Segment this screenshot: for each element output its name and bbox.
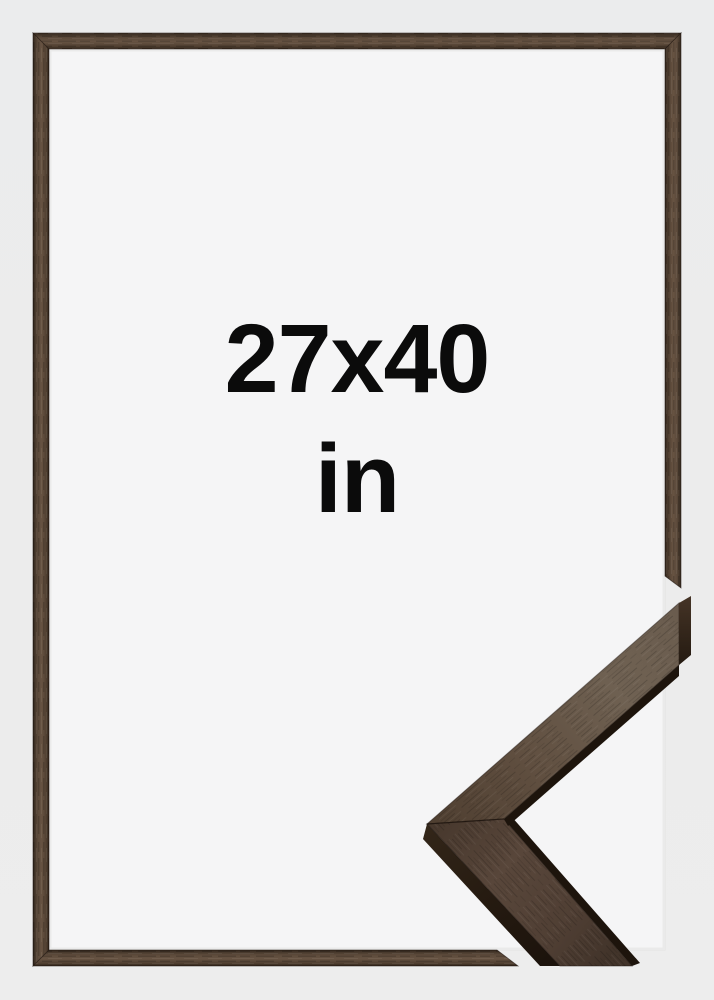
- frame-illustration: [0, 0, 714, 1000]
- product-image: 27x40 in: [0, 0, 714, 1000]
- frame-left-strip: [33, 33, 49, 966]
- frame-top-strip: [33, 33, 681, 49]
- frame-right-strip: [665, 33, 681, 588]
- frame-opening: [49, 49, 665, 950]
- corner-detail-end-cut: [679, 596, 691, 665]
- frame-bottom-strip: [33, 950, 518, 966]
